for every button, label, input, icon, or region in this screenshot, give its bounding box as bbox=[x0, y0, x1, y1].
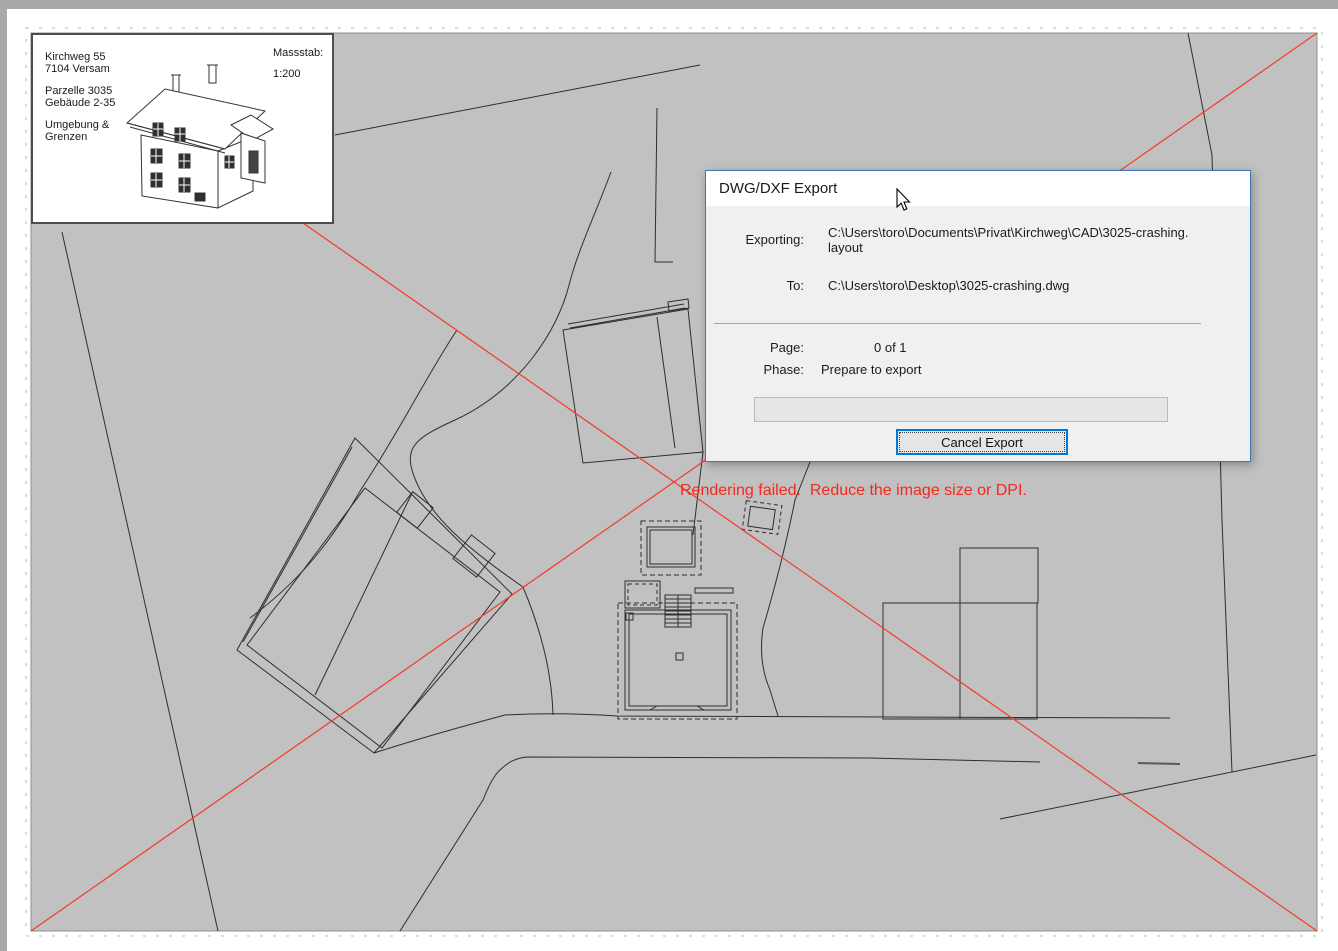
window-frame-left bbox=[0, 0, 7, 951]
render-failed-message: Rendering failed. Reduce the image size … bbox=[680, 482, 1027, 500]
app-window: Kirchweg 55 7104 Versam Parzelle 3035 Ge… bbox=[0, 0, 1338, 951]
exporting-label: Exporting: bbox=[706, 232, 804, 247]
page-value: 0 of 1 bbox=[874, 340, 907, 355]
scale-label: Massstab: bbox=[273, 47, 323, 59]
window-frame-top bbox=[0, 0, 1338, 9]
cancel-export-button[interactable]: Cancel Export bbox=[896, 429, 1068, 455]
mouse-cursor bbox=[893, 188, 911, 212]
title-block-address-2: 7104 Versam bbox=[45, 63, 110, 75]
to-label: To: bbox=[706, 278, 804, 293]
title-block-subject-2: Grenzen bbox=[45, 131, 87, 143]
title-block-subject-1: Umgebung & bbox=[45, 119, 109, 131]
dialog-titlebar[interactable]: DWG/DXF Export bbox=[706, 171, 1250, 206]
dialog-title: DWG/DXF Export bbox=[719, 171, 837, 206]
dwg-dxf-export-dialog: DWG/DXF Export Exporting: C:\Users\toro\… bbox=[705, 170, 1251, 462]
dialog-separator bbox=[714, 323, 1201, 324]
export-progress-bar bbox=[754, 397, 1168, 422]
title-block-parcel-1: Parzelle 3035 bbox=[45, 85, 112, 97]
house-isometric-drawing bbox=[113, 63, 303, 221]
title-block-parcel-2: Gebäude 2-35 bbox=[45, 97, 115, 109]
exporting-value: C:\Users\toro\Documents\Privat\Kirchweg\… bbox=[828, 225, 1189, 255]
title-block: Kirchweg 55 7104 Versam Parzelle 3035 Ge… bbox=[31, 33, 334, 224]
title-block-address-1: Kirchweg 55 bbox=[45, 51, 106, 63]
phase-value: Prepare to export bbox=[821, 362, 921, 377]
to-value: C:\Users\toro\Desktop\3025-crashing.dwg bbox=[828, 278, 1069, 293]
page-label: Page: bbox=[706, 340, 804, 355]
phase-label: Phase: bbox=[706, 362, 804, 377]
exporting-value-line2: layout bbox=[828, 240, 1189, 255]
exporting-value-line1: C:\Users\toro\Documents\Privat\Kirchweg\… bbox=[828, 225, 1189, 240]
